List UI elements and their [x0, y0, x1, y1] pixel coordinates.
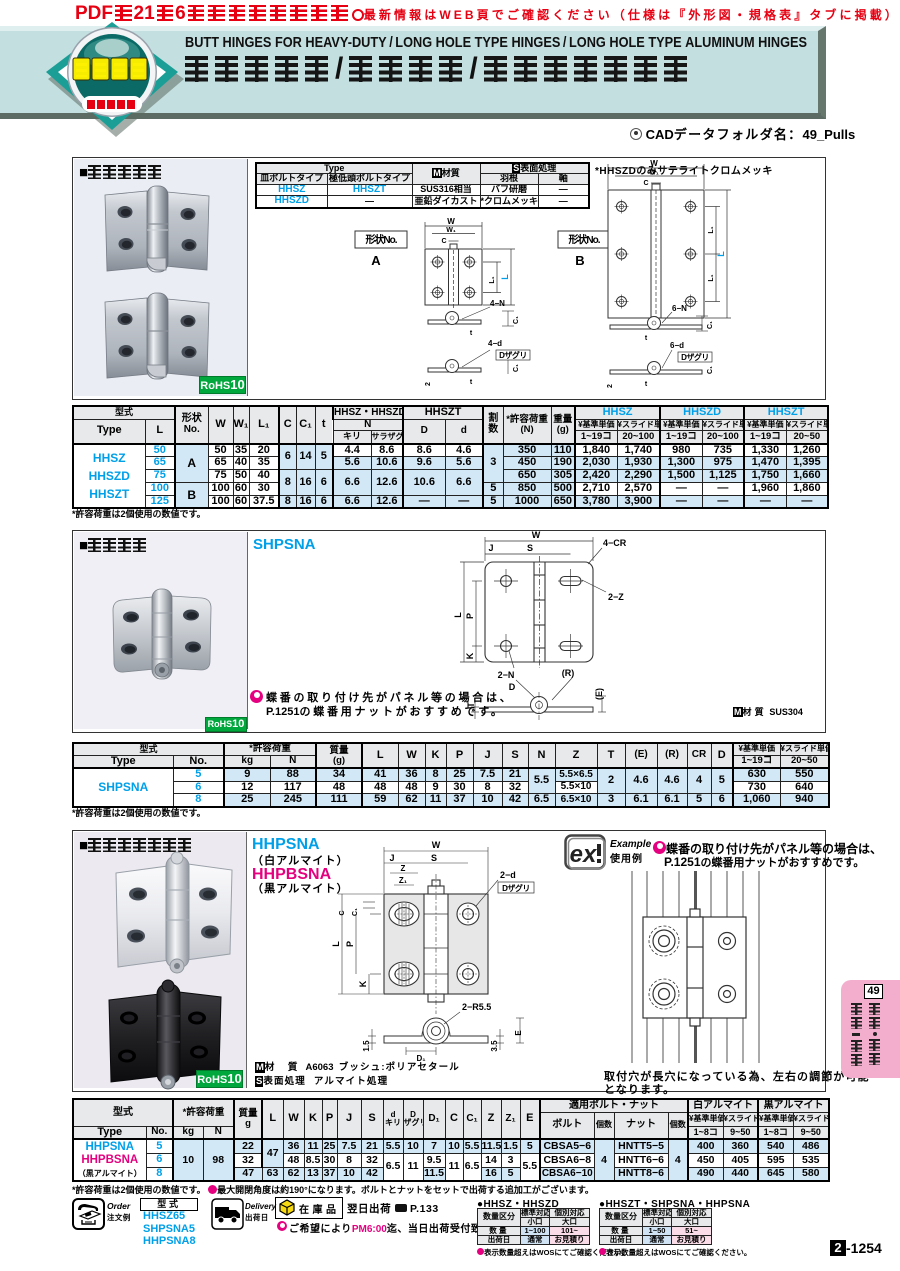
svg-text:L: L — [453, 612, 463, 618]
svg-text:C: C — [441, 238, 446, 245]
svg-text:4−N: 4−N — [490, 299, 505, 308]
svg-text:E: E — [514, 1030, 523, 1036]
svg-text:P: P — [345, 941, 355, 947]
svg-text:L₁: L₁ — [708, 226, 715, 233]
svg-text:3.5: 3.5 — [490, 1040, 499, 1052]
svg-text:W₁: W₁ — [649, 170, 659, 177]
svg-text:C: C — [339, 910, 346, 915]
svg-text:形状No.: 形状No. — [365, 233, 397, 246]
svg-text:A: A — [371, 253, 381, 268]
svg-text:P: P — [465, 613, 475, 619]
svg-text:L₁: L₁ — [708, 274, 715, 281]
svg-text:t: t — [645, 381, 648, 388]
svg-text:(R): (R) — [562, 668, 575, 678]
svg-text:1.5: 1.5 — [362, 1040, 371, 1052]
svg-text:S: S — [527, 543, 533, 553]
svg-text:L: L — [331, 941, 341, 947]
svg-text:W: W — [447, 217, 455, 226]
svg-text:C: C — [643, 180, 648, 187]
svg-text:形状No.: 形状No. — [568, 233, 600, 246]
svg-text:W: W — [532, 530, 541, 540]
svg-text:Dザグリ: Dザグリ — [681, 352, 709, 362]
svg-text:L: L — [500, 274, 510, 280]
svg-text:4−d: 4−d — [488, 339, 502, 348]
svg-text:(E): (E) — [594, 688, 604, 700]
svg-text:2: 2 — [607, 384, 614, 388]
svg-text:2−R5.5: 2−R5.5 — [462, 1002, 491, 1012]
svg-text:B: B — [575, 253, 584, 268]
svg-text:ex: ex — [570, 841, 598, 868]
svg-text:C₁: C₁ — [513, 316, 520, 324]
svg-text:J: J — [488, 543, 493, 553]
svg-text:t: t — [470, 379, 473, 386]
svg-text:2−d: 2−d — [500, 870, 516, 880]
svg-text:t: t — [470, 330, 473, 337]
svg-text:t: t — [645, 335, 648, 342]
svg-text:4−CR: 4−CR — [603, 538, 627, 548]
svg-text:C₁: C₁ — [513, 364, 520, 372]
svg-text:K: K — [358, 980, 368, 987]
svg-text:2−Z: 2−Z — [608, 592, 624, 602]
svg-text:2: 2 — [425, 382, 432, 386]
svg-text:W: W — [432, 840, 441, 850]
svg-text:L₁: L₁ — [489, 276, 496, 283]
svg-text:W: W — [650, 160, 658, 168]
svg-text:6−d: 6−d — [670, 341, 684, 350]
svg-text:C₁: C₁ — [352, 908, 359, 916]
svg-text:Z: Z — [401, 864, 406, 873]
svg-text:L: L — [716, 251, 726, 257]
svg-text:Z₁: Z₁ — [399, 876, 408, 885]
svg-text:C₁: C₁ — [707, 366, 714, 374]
svg-text:6−N: 6−N — [672, 304, 687, 313]
svg-text:Dザグリ: Dザグリ — [502, 883, 530, 893]
svg-text:S: S — [431, 853, 437, 863]
svg-text:2−N: 2−N — [498, 670, 515, 680]
svg-text:K: K — [465, 652, 475, 659]
svg-text:W₁: W₁ — [446, 227, 456, 234]
svg-text:J: J — [389, 853, 394, 863]
svg-text:Dザグリ: Dザグリ — [499, 350, 527, 360]
svg-text:C₁: C₁ — [707, 321, 714, 329]
